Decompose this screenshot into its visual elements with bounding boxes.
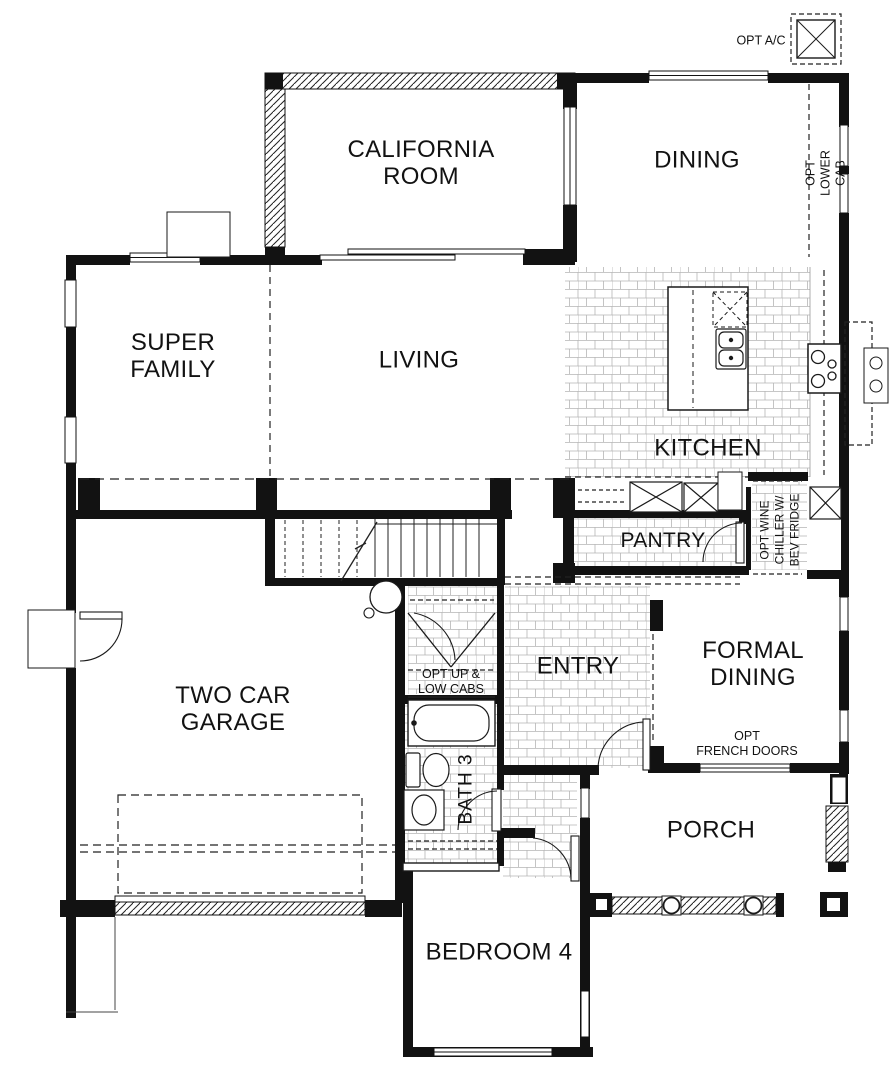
room-label-living: LIVING (379, 346, 460, 373)
california-room-slider-2 (320, 255, 455, 260)
garage-door (115, 902, 365, 915)
california-room-left-wall (265, 89, 285, 247)
water-softener-icon (364, 608, 374, 618)
room-label-bedroom4: BEDROOM 4 (426, 938, 573, 965)
annotation-opt-french-doors: OPT FRENCH DOORS (696, 729, 797, 759)
formal-dining-window-2 (840, 710, 848, 742)
super-family-left-window-1 (65, 280, 76, 327)
bump-out (167, 212, 230, 257)
porch-right-window (832, 777, 846, 803)
bath-sink-icon (404, 790, 444, 830)
opt-exterior-fixture (864, 348, 888, 403)
formal-dining-window-1 (840, 597, 848, 631)
room-label-super-family: SUPER FAMILY (130, 329, 215, 383)
porch-pier (826, 806, 848, 862)
stair-break-line (341, 522, 377, 581)
california-room-top-wall (265, 73, 575, 89)
room-label-two-car-garage: TWO CAR GARAGE (175, 682, 290, 736)
bathtub-icon (408, 700, 495, 746)
room-label-bath3: BATH 3 (455, 753, 476, 824)
opt-ac-unit-icon (797, 20, 835, 58)
bedroom4-right-window (581, 991, 589, 1037)
counter-appliance-icons (630, 482, 718, 512)
garage-door-header (115, 896, 365, 902)
annotation-opt-ac: OPT A/C (736, 34, 785, 49)
water-heater-icon (370, 581, 402, 613)
bedroom-hall-floor (503, 773, 577, 878)
annotation-opt-wine-chiller: OPT WINE CHILLER W/ BEV FRIDGE (758, 494, 803, 567)
room-label-formal-dining: FORMAL DINING (702, 637, 804, 691)
bath-bedroom-divider (403, 863, 499, 871)
super-family-left-window-2 (65, 417, 76, 463)
room-label-dining: DINING (654, 146, 740, 173)
island-sink-icon (716, 329, 746, 369)
california-room-slider-1 (348, 249, 525, 254)
cooktop-icon (808, 344, 841, 393)
garage-side-door (80, 612, 122, 661)
room-label-porch: PORCH (667, 816, 755, 843)
room-label-kitchen: KITCHEN (654, 434, 761, 461)
fridge-icon (810, 487, 841, 519)
garage-clearance-box (118, 795, 362, 893)
room-label-entry: ENTRY (537, 652, 619, 679)
annotation-opt-up-low-cabs: OPT UP & LOW CABS (418, 667, 484, 697)
hall-window (581, 788, 589, 818)
room-label-pantry: PANTRY (620, 529, 705, 553)
toilet-icon (406, 753, 449, 787)
stairs (285, 519, 497, 581)
pantry-opening-frame (718, 472, 742, 510)
floor-plan: CALIFORNIA ROOM DINING SUPER FAMILY LIVI… (0, 0, 889, 1080)
side-stoop (28, 610, 75, 668)
annotation-opt-lower-cab: OPT LOWER CAB (804, 142, 849, 205)
room-label-california-room: CALIFORNIA ROOM (347, 136, 494, 190)
